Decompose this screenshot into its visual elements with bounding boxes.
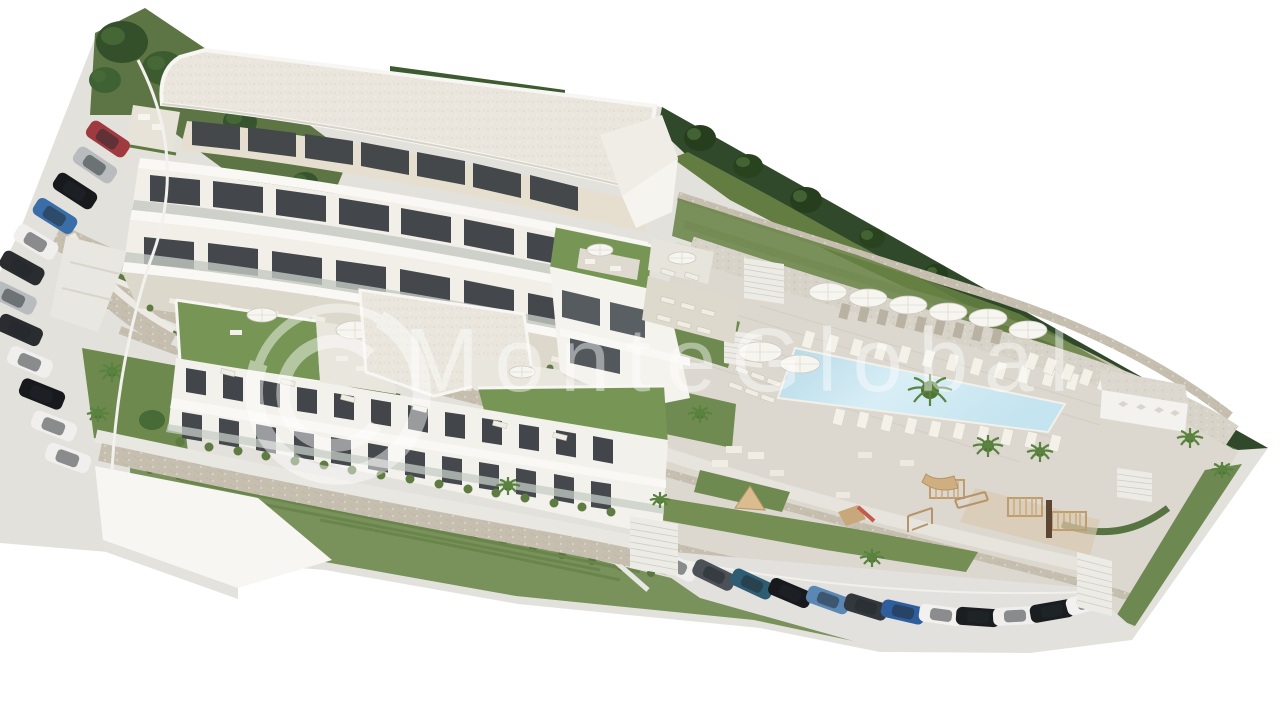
svg-text:MonteGlobal: MonteGlobal <box>404 311 1085 411</box>
